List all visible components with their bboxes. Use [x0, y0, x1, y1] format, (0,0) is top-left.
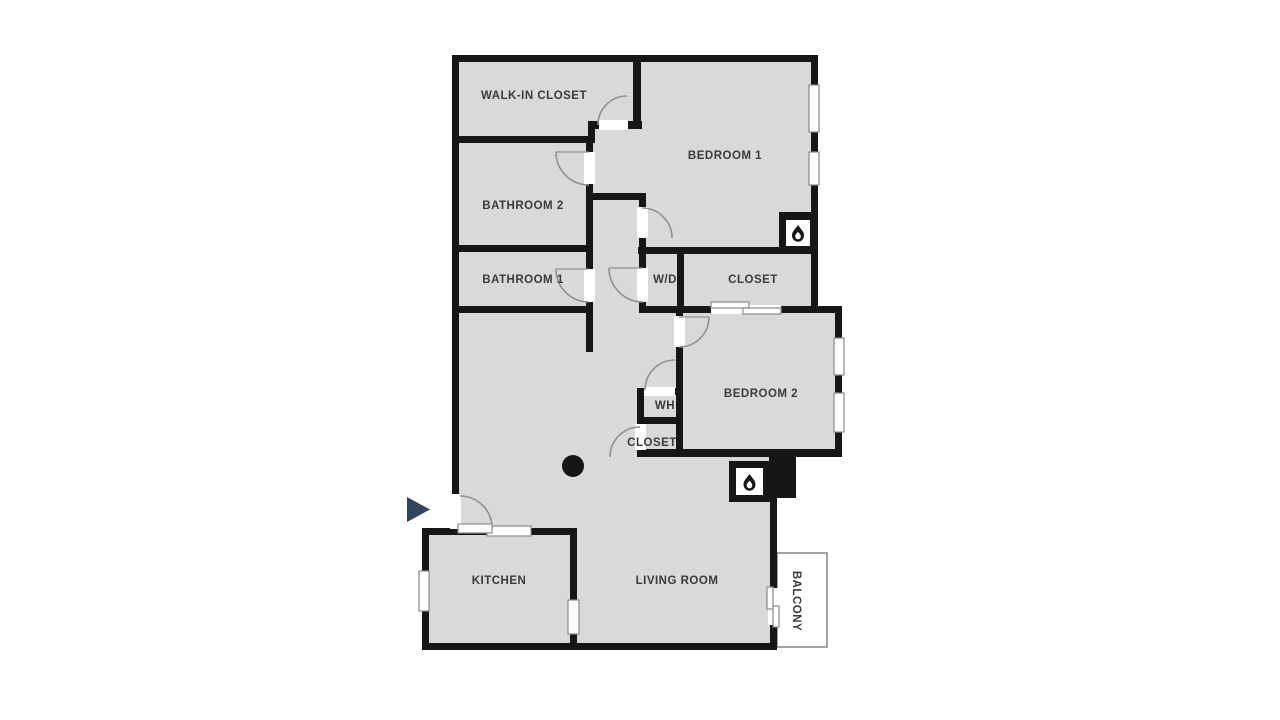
- balcony-outline: [777, 553, 827, 647]
- entry-arrow-icon: [407, 497, 430, 522]
- fireplace-living-room: [729, 454, 796, 502]
- floor-plan-page: WALK-IN CLOSETBEDROOM 1BATHROOM 2BATHROO…: [0, 0, 1280, 720]
- floor-plan: [0, 0, 1280, 720]
- entry-door-leaf: [458, 524, 492, 533]
- fireplace-bedroom-1: [779, 212, 817, 254]
- column-dot: [562, 455, 584, 477]
